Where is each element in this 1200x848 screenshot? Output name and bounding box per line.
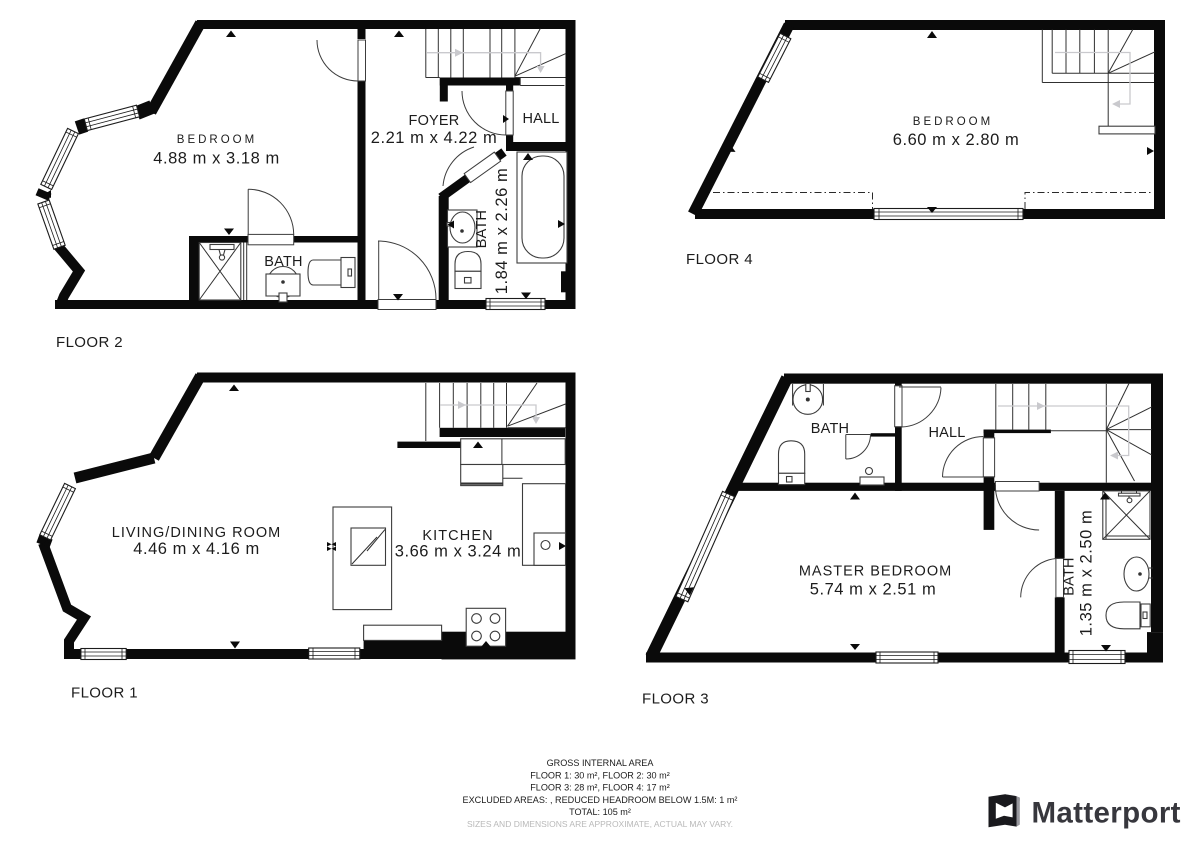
svg-text:1.35 m x 2.50 m: 1.35 m x 2.50 m (1078, 510, 1096, 637)
svg-text:BATH: BATH (264, 254, 302, 270)
svg-text:FLOOR 1: FLOOR 1 (71, 685, 138, 702)
svg-text:4.46 m x 4.16 m: 4.46 m x 4.16 m (133, 540, 260, 558)
svg-text:LIVING/DINING ROOM: LIVING/DINING ROOM (112, 525, 281, 541)
svg-text:FLOOR 2: FLOOR 2 (56, 334, 123, 351)
svg-text:BEDROOM: BEDROOM (913, 116, 993, 128)
svg-text:1.84 m x 2.26 m: 1.84 m x 2.26 m (493, 168, 511, 295)
svg-text:HALL: HALL (522, 111, 559, 127)
svg-text:BATH: BATH (811, 421, 849, 437)
svg-text:6.60 m x 2.80 m: 6.60 m x 2.80 m (893, 131, 1020, 149)
svg-text:5.74 m x 2.51 m: 5.74 m x 2.51 m (810, 581, 937, 599)
svg-text:TOTAL: 105 m²: TOTAL: 105 m² (569, 807, 631, 817)
svg-text:Matterport: Matterport (1032, 797, 1181, 830)
svg-text:GROSS INTERNAL AREA: GROSS INTERNAL AREA (547, 758, 655, 768)
svg-text:2.21 m x 4.22 m: 2.21 m x 4.22 m (371, 129, 498, 147)
svg-text:4.88 m x 3.18 m: 4.88 m x 3.18 m (153, 149, 280, 167)
svg-text:BATH: BATH (474, 210, 490, 248)
svg-text:3.66 m x 3.24 m: 3.66 m x 3.24 m (395, 543, 522, 561)
svg-text:FLOOR 4: FLOOR 4 (686, 251, 753, 268)
svg-text:FLOOR 3: 28 m², FLOOR 4: 17 m²: FLOOR 3: 28 m², FLOOR 4: 17 m² (530, 783, 669, 793)
svg-text:MASTER BEDROOM: MASTER BEDROOM (799, 564, 952, 580)
svg-text:FLOOR 3: FLOOR 3 (642, 691, 709, 708)
svg-text:FLOOR 1: 30 m², FLOOR 2: 30 m²: FLOOR 1: 30 m², FLOOR 2: 30 m² (530, 770, 669, 780)
svg-text:HALL: HALL (928, 425, 965, 441)
svg-text:EXCLUDED AREAS: , REDUCED HEAD: EXCLUDED AREAS: , REDUCED HEADROOM BELOW… (463, 795, 738, 805)
svg-text:BATH: BATH (1061, 557, 1077, 595)
svg-text:SIZES AND DIMENSIONS ARE APPRO: SIZES AND DIMENSIONS ARE APPROXIMATE, AC… (467, 819, 733, 829)
svg-text:FOYER: FOYER (409, 113, 460, 129)
svg-text:BEDROOM: BEDROOM (177, 134, 257, 146)
